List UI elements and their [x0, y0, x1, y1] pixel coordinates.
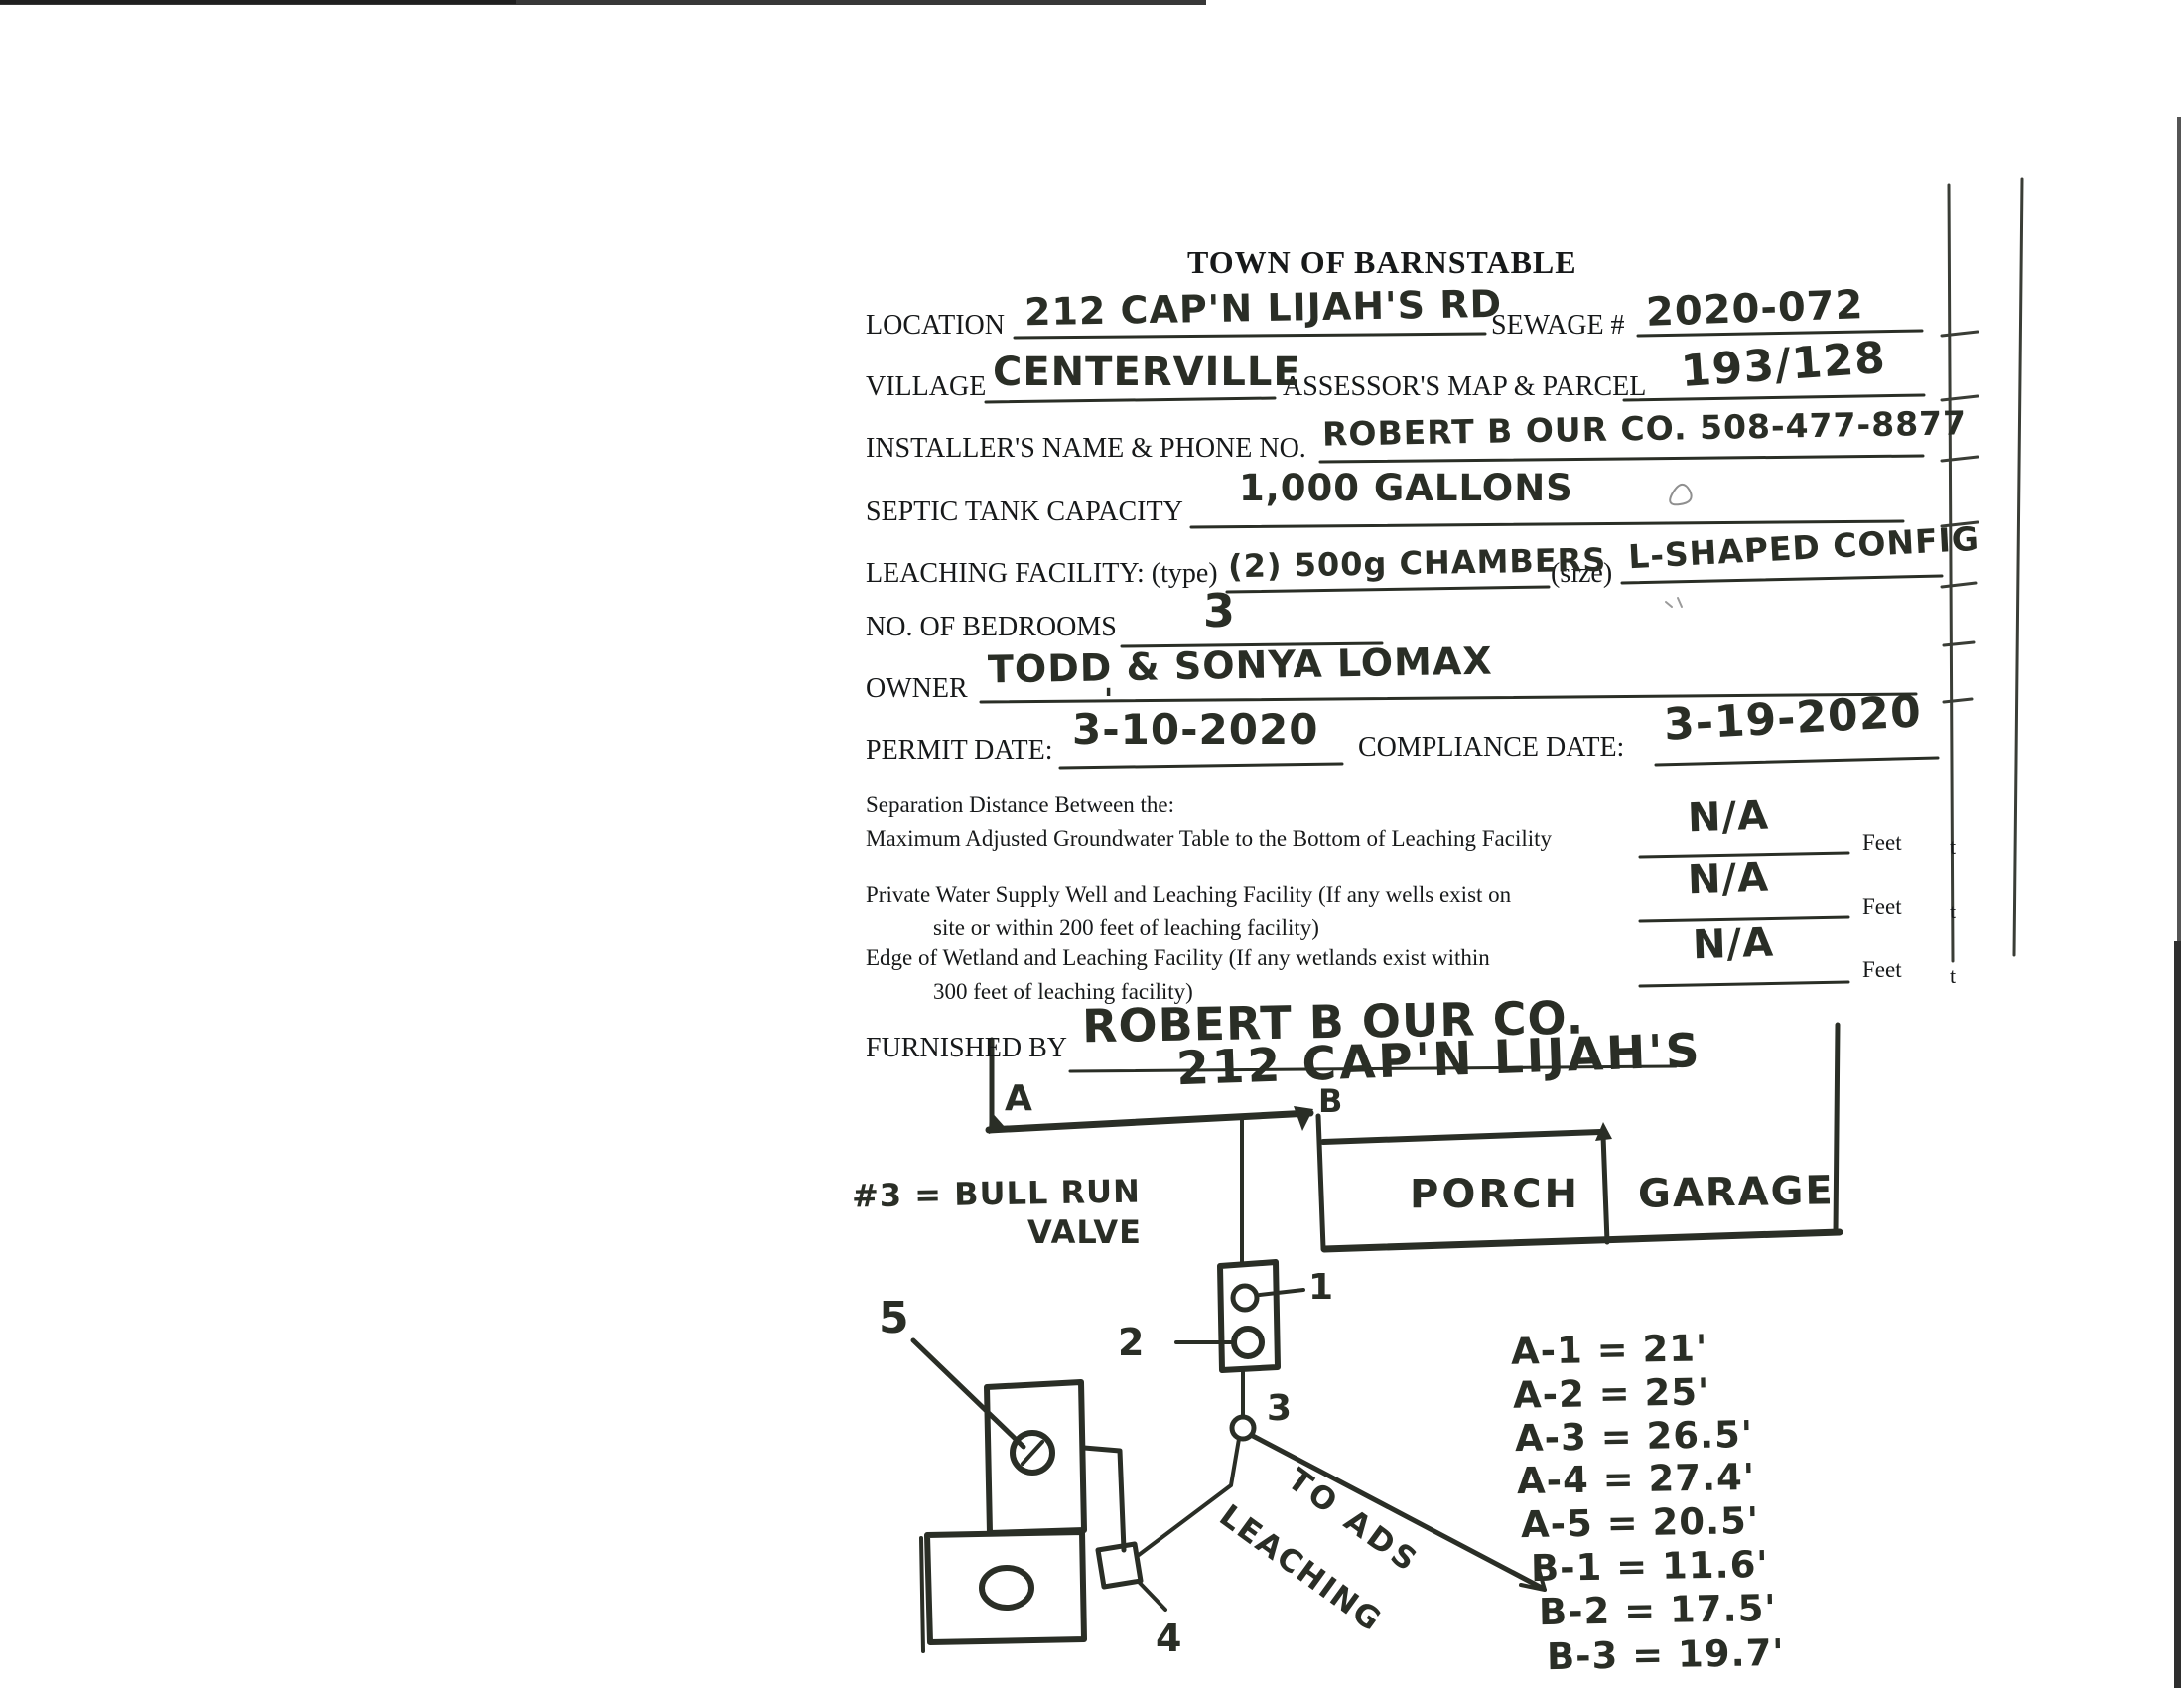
bedrooms-value: 3 — [1203, 584, 1236, 637]
installer-underline — [1320, 456, 1923, 462]
point-3-label: 3 — [1267, 1388, 1293, 1429]
porch-garage-divider — [1603, 1136, 1607, 1242]
point-5-label: 5 — [879, 1293, 910, 1343]
page-edge-tick — [1944, 699, 1972, 702]
leach-chamber-cover-circle — [982, 1568, 1031, 1608]
septic-capacity-label: SEPTIC TANK CAPACITY — [866, 496, 1183, 528]
measurement-row: A-1 = 21' — [1511, 1327, 1708, 1372]
leaching-type-value: (2) 500g CHAMBERS — [1228, 541, 1607, 586]
compliance-date-label: COMPLIANCE DATE: — [1358, 732, 1624, 764]
measurement-row: B-3 = 19.7' — [1547, 1631, 1785, 1678]
scan-right-edge-dark — [2174, 941, 2181, 1688]
sewage-label: SEWAGE # — [1491, 310, 1625, 342]
permit-date-label: PERMIT DATE: — [866, 735, 1053, 767]
leach-size-underline — [1622, 576, 1942, 583]
leach-chamber-box — [927, 1532, 1084, 1642]
compliance-underline — [1656, 758, 1938, 765]
septic-underline — [1191, 521, 1903, 527]
sewage-value: 2020-072 — [1645, 282, 1864, 336]
cover-5-slash — [1023, 1442, 1042, 1464]
feet-unit-1: Feet — [1862, 830, 1902, 856]
location-label: LOCATION — [866, 310, 1005, 342]
wetland-distance-value: N/A — [1692, 920, 1775, 969]
garage-label: GARAGE — [1638, 1168, 1835, 1216]
location-value: 212 CAP'N LIJAH'S RD — [1024, 282, 1503, 334]
bull-run-note-line2: VALVE — [1027, 1213, 1142, 1251]
permit-underline — [1060, 764, 1342, 768]
bedrooms-label: NO. OF BEDROOMS — [866, 612, 1117, 643]
bull-run-note-line1: #3 = BULL RUN — [852, 1172, 1141, 1214]
measurement-row: A-4 = 27.4' — [1517, 1456, 1756, 1502]
point-4-label: 4 — [1156, 1617, 1182, 1660]
village-label: VILLAGE — [866, 371, 986, 403]
leach-chamber-double-stroke — [921, 1538, 923, 1651]
point-1-label: 1 — [1308, 1267, 1334, 1308]
page-edge-tick — [1942, 583, 1976, 587]
village-underline — [986, 398, 1275, 402]
separation-heading: Separation Distance Between the: — [866, 792, 1174, 818]
porch-top-edge — [1323, 1132, 1600, 1142]
feet-unit-3: Feet — [1862, 957, 1902, 983]
permit-stray-mark: ' — [1104, 683, 1114, 718]
groundwater-distance-value: N/A — [1687, 793, 1770, 842]
porch-label: PORCH — [1410, 1172, 1580, 1217]
septic-capacity-value: 1,000 GALLONS — [1239, 467, 1573, 509]
page-edge-tick — [1944, 642, 1974, 645]
sep-row1-line1: Maximum Adjusted Groundwater Table to th… — [866, 826, 1552, 852]
form-title: TOWN OF BARNSTABLE — [1187, 244, 1577, 281]
porch-garage-bottom-edge — [1324, 1232, 1840, 1249]
page-edge-letter: t — [1950, 963, 1956, 989]
measurement-row: A-2 = 25' — [1513, 1370, 1710, 1416]
corner-b-label: B — [1318, 1082, 1343, 1120]
furnished-by-label: FURNISHED BY — [866, 1033, 1067, 1064]
installer-label: INSTALLER'S NAME & PHONE NO. — [866, 433, 1306, 465]
cover-1-circle — [1233, 1286, 1257, 1310]
measurement-row: A-5 = 20.5' — [1521, 1499, 1760, 1546]
point-2-label: 2 — [1118, 1321, 1145, 1364]
smudge-mark — [1666, 598, 1682, 607]
scanned-septic-permit-document: TOWN OF BARNSTABLE LOCATION SEWAGE # VIL… — [0, 0, 2184, 1688]
measurement-row: A-3 = 26.5' — [1515, 1413, 1754, 1460]
pipe-to-point-4 — [1139, 1439, 1239, 1555]
measurement-row: B-2 = 17.5' — [1539, 1587, 1777, 1633]
page-edge-letter: t — [1950, 834, 1956, 860]
page-edge-tick — [1942, 396, 1978, 400]
chamber-step-line — [1084, 1448, 1124, 1550]
garage-right-edge — [1836, 1025, 1838, 1232]
parcel-underline — [1624, 395, 1924, 400]
porch-left-edge — [1318, 1116, 1323, 1248]
map-parcel-label: ASSESSOR'S MAP & PARCEL — [1283, 371, 1646, 403]
corner-a-label: A — [1005, 1078, 1033, 1119]
owner-value: TODD & SONYA LOMAX — [988, 639, 1493, 692]
leaching-facility-label: LEACHING FACILITY: (type) — [866, 558, 1218, 590]
page-edge-letter: t — [1950, 899, 1956, 924]
measurement-row: B-1 = 11.6' — [1531, 1543, 1769, 1590]
well-distance-value: N/A — [1687, 855, 1770, 904]
cover-2-circle — [1234, 1329, 1262, 1356]
page-edge-tick — [1942, 332, 1978, 336]
leader-line-4 — [1139, 1582, 1165, 1610]
corner-b-blob — [1294, 1106, 1313, 1131]
house-front-line — [989, 1113, 1310, 1130]
scan-top-edge-dark — [0, 0, 516, 4]
leader-line-5 — [913, 1340, 1024, 1447]
leach-type-underline — [1227, 587, 1549, 592]
sep-row2-line1: Private Water Supply Well and Leaching F… — [866, 882, 1511, 908]
location-underline — [1015, 334, 1485, 338]
point-4-box — [1098, 1544, 1141, 1587]
sep-row3-line1: Edge of Wetland and Leaching Facility (I… — [866, 945, 1490, 971]
na3-underline — [1640, 982, 1848, 986]
page-edge-line-2 — [2014, 179, 2022, 955]
feet-unit-2: Feet — [1862, 894, 1902, 919]
owner-label: OWNER — [866, 673, 968, 705]
leader-line-1 — [1260, 1290, 1303, 1295]
village-value: CENTERVILLE — [993, 350, 1301, 395]
sep-row2-line2: site or within 200 feet of leaching faci… — [933, 915, 1319, 941]
page-edge-tick — [1942, 457, 1978, 461]
pump-chamber-box — [987, 1382, 1084, 1533]
smudge-mark — [1670, 485, 1691, 504]
